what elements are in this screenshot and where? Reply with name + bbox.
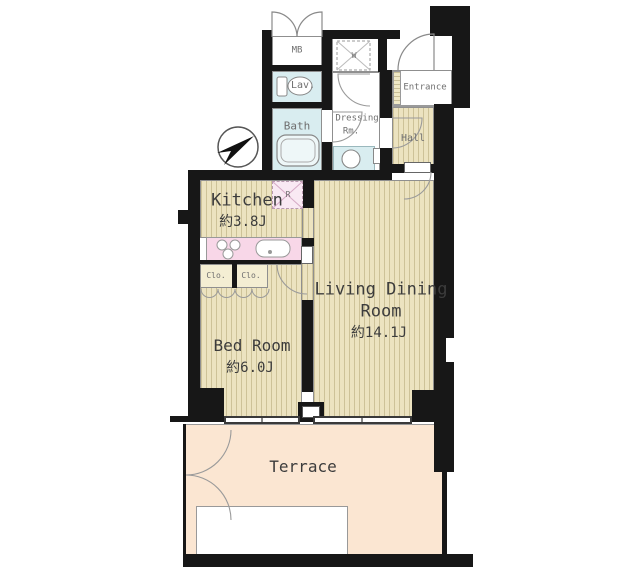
- wall: [378, 30, 387, 72]
- wall: [183, 424, 186, 555]
- bedroom-label: Bed Room: [213, 338, 290, 354]
- wall: [262, 30, 272, 172]
- wall: [322, 30, 332, 72]
- wall: [170, 416, 188, 422]
- dressing-label-line1: Dressing: [335, 115, 378, 124]
- wall: [322, 30, 400, 39]
- wall: [178, 210, 188, 224]
- kitchen-counter: [206, 237, 302, 261]
- bath-label: Bath: [284, 121, 311, 132]
- meter-box-doors: [272, 12, 322, 37]
- room-bath: [272, 108, 322, 172]
- terrace-inner-pit: [196, 506, 348, 555]
- ldr-area-label: 約14.1J: [351, 326, 407, 340]
- shoe-storage: [393, 71, 401, 105]
- closet-left-label: Clo.: [206, 272, 225, 280]
- vanity-counter: [333, 146, 375, 171]
- hall-label: Hall: [401, 134, 425, 144]
- wall: [302, 300, 313, 392]
- hall-ldr-door-leaf: [404, 162, 431, 173]
- washing-machine-label: W: [352, 52, 357, 60]
- compass-icon: [217, 127, 258, 167]
- ldr-label-line2: Room: [361, 304, 402, 321]
- bedroom-door-opening: [302, 264, 313, 300]
- terrace-label: Terrace: [269, 459, 336, 475]
- wall: [322, 72, 332, 110]
- ldr-label-line1: Living Dining: [314, 282, 447, 299]
- wall: [302, 238, 314, 246]
- wall: [442, 470, 447, 556]
- wall: [322, 142, 332, 172]
- wall: [452, 6, 470, 108]
- ldr-bedroom-door-leaf: [301, 246, 313, 264]
- lavatory-label: Lav.: [291, 81, 315, 91]
- closet-right-label: Clo.: [241, 272, 260, 280]
- kitchen-label: Kitchen: [211, 193, 283, 210]
- entrance-door: [398, 34, 434, 70]
- wall: [430, 164, 440, 173]
- room-living-dining: [313, 180, 434, 420]
- wall: [200, 260, 303, 264]
- wall: [380, 148, 392, 172]
- wall: [272, 65, 322, 71]
- floor-plan: MB W Lav. Bath Dressing Rm. Entrance Hal…: [0, 0, 640, 569]
- bedroom-terrace-window: [224, 416, 300, 424]
- wall: [303, 180, 314, 208]
- wall: [380, 70, 392, 118]
- wall: [188, 388, 224, 422]
- ldr-terrace-window: [313, 416, 412, 424]
- refrigerator-label: R: [286, 191, 291, 199]
- entrance-label: Entrance: [403, 84, 446, 93]
- dressing-label-line2: Rm.: [343, 128, 359, 137]
- wall: [272, 102, 322, 108]
- wall: [188, 170, 392, 180]
- wall: [232, 264, 237, 288]
- meter-box-label: MB: [292, 47, 303, 56]
- wall: [183, 554, 473, 567]
- wall-notch: [446, 338, 454, 362]
- wall: [392, 164, 404, 173]
- bedroom-area-label: 約6.0J: [226, 361, 274, 375]
- kitchen-area-label: 約3.8J: [219, 215, 267, 229]
- wall: [188, 170, 200, 390]
- wall: [412, 390, 438, 422]
